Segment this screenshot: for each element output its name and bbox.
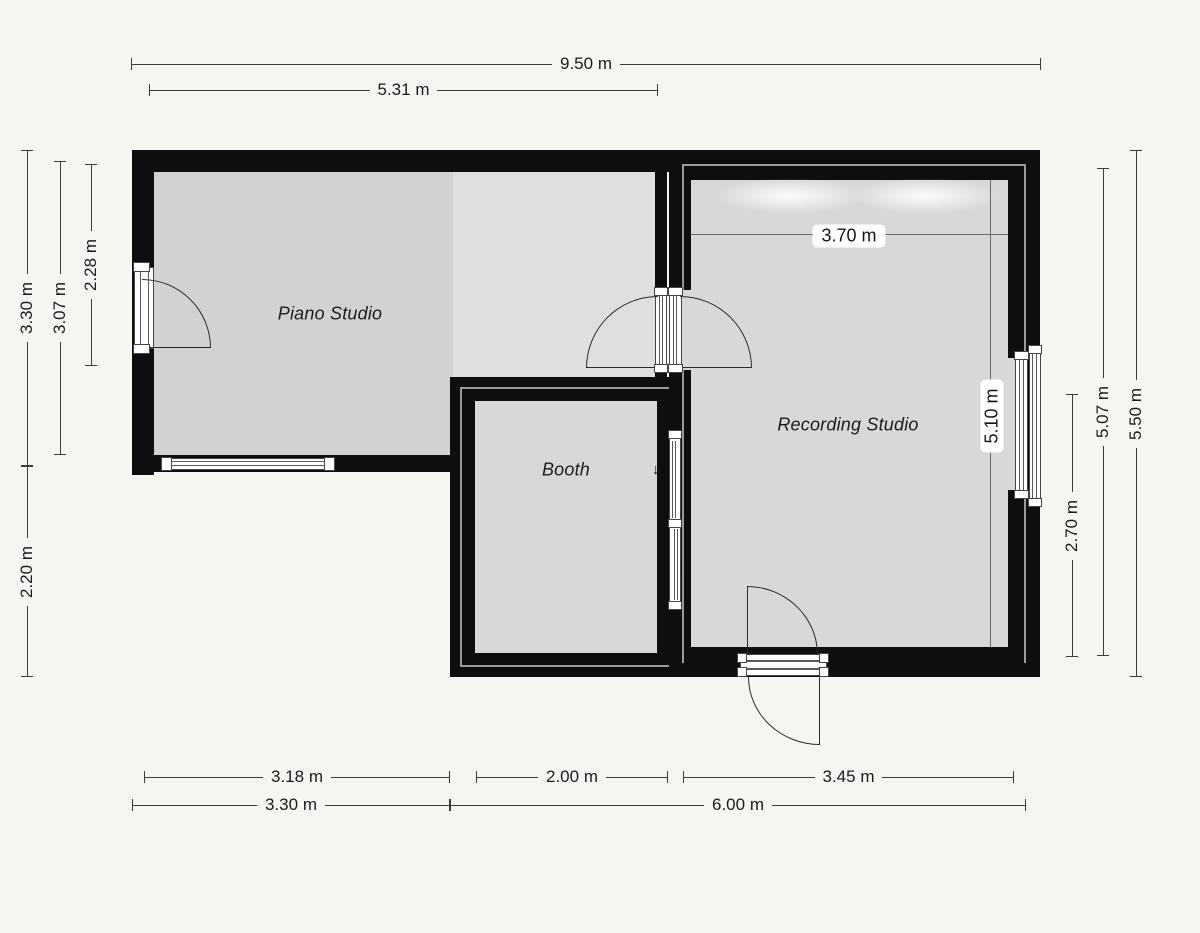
- dim-bottom-recording: 3.45 m: [683, 769, 1014, 785]
- dim-bottom-right-total: 6.00 m: [450, 797, 1026, 813]
- piano-window-mullion: [166, 461, 330, 462]
- dim-left-upper: 3.30 m: [19, 150, 35, 466]
- entry-door-frame-line: [148, 270, 149, 346]
- piano-window-mullion: [166, 465, 330, 466]
- east-window-cap: [1028, 498, 1042, 507]
- entry-door-jamb-cap: [133, 262, 150, 272]
- recording-inner-wall-west: [684, 166, 691, 661]
- south-door-jamb-cap: [737, 667, 747, 677]
- room-label-piano-studio: Piano Studio: [278, 304, 382, 325]
- booth-sliding-door-cap: [668, 601, 682, 610]
- south-door-threshold-line: [743, 660, 824, 662]
- center-door-frame-line: [662, 292, 663, 368]
- dim-bottom-piano: 3.18 m: [144, 769, 450, 785]
- booth-sliding-door-cap: [668, 430, 682, 439]
- south-door-jamb-cap: [819, 653, 829, 663]
- piano-window-cap: [161, 457, 172, 471]
- piano-window: [163, 458, 333, 470]
- dim-left-door: 2.28 m: [83, 164, 99, 366]
- dim-left-inner: 3.07 m: [52, 161, 68, 455]
- dim-top-total: 9.50 m: [131, 56, 1041, 72]
- entry-door-frame-line: [140, 270, 141, 346]
- south-door-threshold: [740, 654, 827, 676]
- entry-door-jamb-cap: [133, 344, 150, 354]
- center-door-frame-line: [673, 292, 674, 368]
- ceiling-light-highlight: [715, 178, 865, 214]
- dim-right-inner: 5.07 m: [1095, 168, 1111, 656]
- slide-direction-up-icon: ↑: [684, 558, 692, 573]
- ceiling-light-highlight: [850, 178, 1000, 214]
- dim-right-lower: 2.70 m: [1064, 394, 1080, 657]
- booth-sliding-door-cap: [668, 519, 682, 528]
- booth-sliding-door-panel-line: [677, 529, 678, 600]
- east-window-cap: [1014, 351, 1029, 360]
- south-door-swing-out: [748, 677, 820, 745]
- east-window-mullion: [1023, 358, 1024, 490]
- center-door-jamb-cap: [668, 364, 683, 373]
- dim-top-left-span: 5.31 m: [149, 82, 658, 98]
- booth-floor: [475, 401, 657, 653]
- recording-width-dim-label: 3.70 m: [812, 225, 885, 248]
- east-window-mullion: [1019, 358, 1020, 490]
- dim-bottom-booth: 2.00 m: [476, 769, 668, 785]
- east-window-cap: [1028, 345, 1042, 354]
- dim-right-total: 5.50 m: [1128, 150, 1144, 677]
- east-window-mullion: [1032, 352, 1033, 498]
- recording-floor: [691, 180, 1008, 647]
- room-label-recording-studio: Recording Studio: [777, 415, 918, 436]
- booth-sliding-door-panel-line: [675, 441, 676, 518]
- recording-inner-wall-south: [684, 649, 1024, 663]
- slide-direction-down-icon: ↓: [652, 462, 660, 477]
- east-window-outer: [1029, 350, 1041, 500]
- center-door-jamb-cap: [668, 287, 683, 296]
- recording-height-dim-label: 5.10 m: [981, 379, 1004, 452]
- center-door-frame-line: [659, 292, 660, 368]
- floor-plan-canvas: 3.70 m 5.10 m ↓ ↑: [0, 0, 1200, 933]
- piano-wall-top: [132, 150, 672, 172]
- south-door-jamb-cap: [737, 653, 747, 663]
- center-door-jamb-cap: [654, 364, 668, 373]
- east-window-inner: [1015, 356, 1028, 492]
- booth-sliding-door-panel-line: [672, 441, 673, 518]
- dim-bottom-left-total: 3.30 m: [132, 797, 450, 813]
- room-label-booth: Booth: [542, 460, 590, 481]
- dim-left-lower: 2.20 m: [19, 466, 35, 677]
- center-door-frame-line: [676, 292, 677, 368]
- east-window-mullion: [1036, 352, 1037, 498]
- booth-sliding-door-panel-line: [674, 529, 675, 600]
- east-window-cap: [1014, 490, 1029, 499]
- piano-window-cap: [324, 457, 335, 471]
- center-door-jamb-cap: [654, 287, 668, 296]
- south-door-threshold-line: [743, 668, 824, 670]
- south-door-jamb-cap: [819, 667, 829, 677]
